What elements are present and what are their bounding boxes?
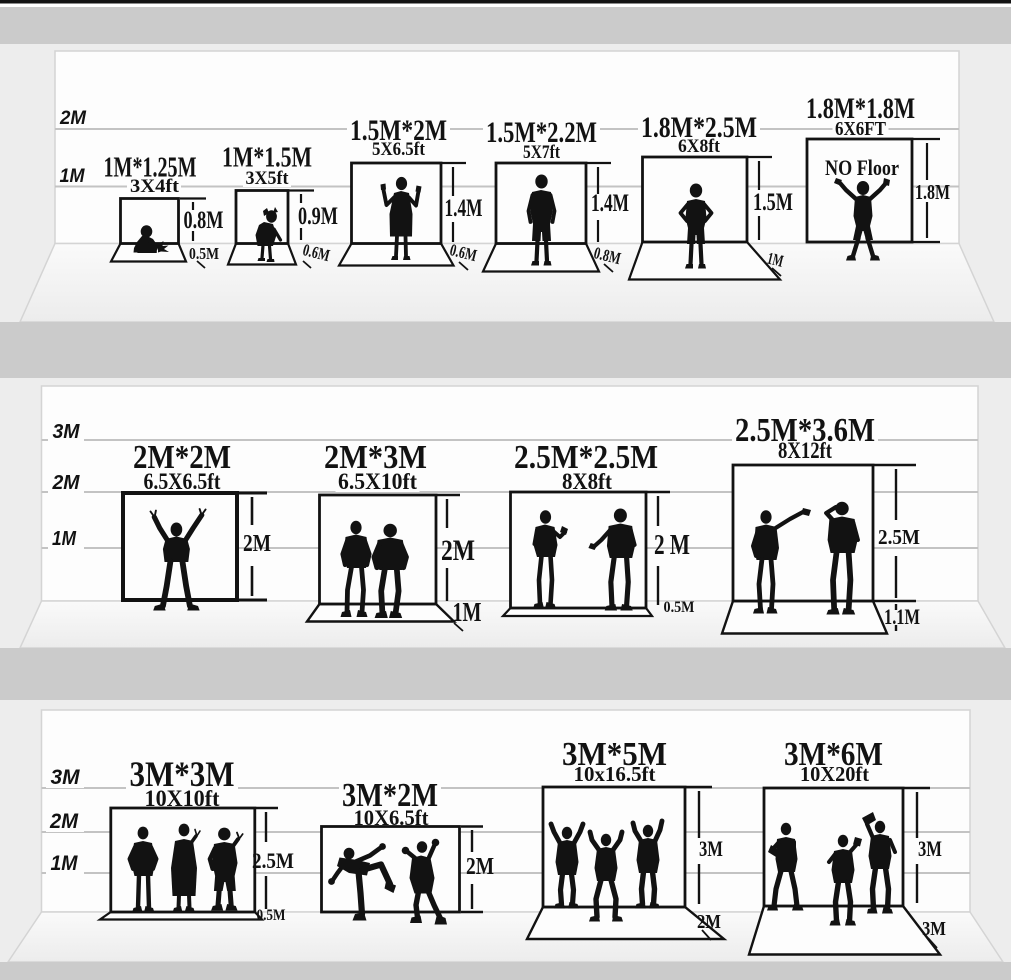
- svg-text:3X5ft: 3X5ft: [246, 168, 290, 189]
- svg-text:3M: 3M: [922, 918, 946, 940]
- svg-text:10x16.5ft: 10x16.5ft: [574, 762, 656, 786]
- svg-text:0.8M: 0.8M: [184, 207, 224, 234]
- svg-text:2.5M: 2.5M: [252, 848, 294, 873]
- svg-text:NO Floor: NO Floor: [825, 155, 899, 180]
- svg-text:0.5M: 0.5M: [189, 244, 219, 263]
- svg-text:1M: 1M: [453, 597, 482, 627]
- svg-text:2M: 2M: [59, 108, 87, 129]
- svg-text:2M: 2M: [441, 534, 475, 567]
- svg-text:5X7ft: 5X7ft: [523, 142, 561, 163]
- svg-text:2M: 2M: [49, 810, 78, 833]
- svg-text:10X20ft: 10X20ft: [800, 762, 869, 786]
- svg-text:2M: 2M: [697, 911, 721, 933]
- svg-text:2 M: 2 M: [654, 530, 690, 561]
- svg-text:2M: 2M: [466, 854, 494, 880]
- svg-text:3M: 3M: [918, 836, 942, 861]
- svg-text:5X6.5ft: 5X6.5ft: [372, 139, 426, 160]
- svg-text:8X8ft: 8X8ft: [562, 469, 612, 494]
- svg-text:0.5M: 0.5M: [257, 907, 286, 924]
- svg-text:1M: 1M: [60, 166, 86, 187]
- svg-text:3M: 3M: [53, 421, 81, 443]
- svg-text:1M: 1M: [51, 852, 78, 875]
- svg-text:6X8ft: 6X8ft: [678, 136, 721, 157]
- svg-text:3X4ft: 3X4ft: [130, 176, 180, 197]
- svg-text:3M: 3M: [51, 766, 80, 789]
- svg-text:1.1M: 1.1M: [884, 604, 920, 629]
- svg-text:1M: 1M: [52, 528, 77, 550]
- svg-text:0.5M: 0.5M: [664, 599, 695, 616]
- svg-text:6.5X10ft: 6.5X10ft: [338, 469, 417, 494]
- svg-text:0.9M: 0.9M: [298, 203, 338, 230]
- svg-text:2M: 2M: [243, 531, 271, 557]
- svg-text:6.5X6.5ft: 6.5X6.5ft: [144, 469, 221, 494]
- svg-text:2.5M: 2.5M: [878, 525, 920, 549]
- svg-text:3M: 3M: [699, 836, 723, 861]
- svg-text:2M: 2M: [52, 472, 81, 494]
- svg-text:1.4M: 1.4M: [591, 190, 629, 217]
- svg-text:1.8M: 1.8M: [915, 180, 950, 204]
- svg-text:6X6FT: 6X6FT: [835, 118, 887, 140]
- svg-text:8X12ft: 8X12ft: [778, 438, 832, 463]
- svg-text:1.5M: 1.5M: [753, 189, 793, 216]
- svg-text:1.4M: 1.4M: [445, 195, 483, 222]
